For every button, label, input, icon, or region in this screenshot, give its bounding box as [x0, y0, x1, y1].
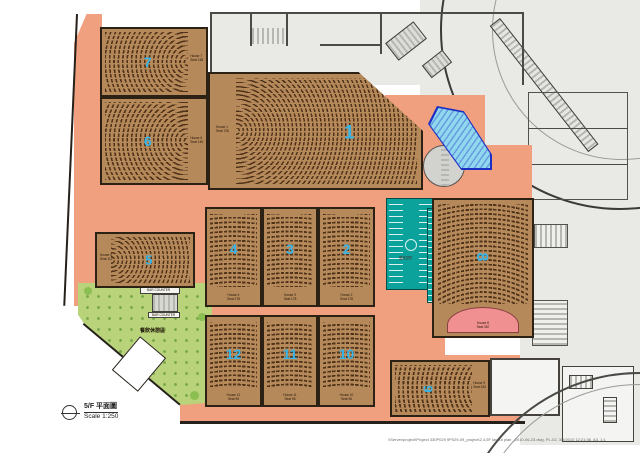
seat-count: Seat 138 — [190, 58, 203, 62]
bar-counter-label: BAR COUNTER — [147, 289, 170, 293]
house-number: 7 — [144, 55, 152, 69]
seat-count: Seat 178 — [284, 297, 297, 301]
theater-12: 12 House 12 Seat 96 — [205, 315, 262, 407]
house-number: 12 — [226, 347, 242, 361]
house-number: 5 — [145, 254, 152, 267]
stair-right-1 — [534, 224, 568, 248]
house-label: House 5 Seat 112 — [100, 254, 113, 262]
file-path-footer: \\Server\project\Project 330P029 9P029-0… — [388, 437, 606, 442]
wall-line — [380, 12, 382, 54]
wall-line — [522, 12, 524, 85]
section-marker-icon — [62, 405, 77, 420]
seat-count: Seat 112 — [100, 257, 113, 261]
house-number: 1 — [344, 124, 355, 143]
theater-4: 4 House 4 Seat 178 — [205, 207, 262, 307]
seat-count: Seat 387 — [477, 325, 490, 329]
toilet-stalls-left — [389, 203, 403, 283]
theater-1: 1 House 1 Seat 726 — [208, 72, 423, 190]
seat-count: Seat 726 — [216, 129, 229, 133]
floor-title: 5/F 平面圖 — [84, 401, 118, 413]
drawing-title-block: 5/F 平面圖 Scale 1:250 — [84, 401, 118, 420]
house-number: 9 — [422, 385, 435, 392]
spiral-stair-steps — [441, 148, 449, 186]
house-label: House 1 Seat 726 — [216, 126, 229, 134]
house-label: House 4 Seat 178 — [227, 294, 240, 302]
house-number: 10 — [339, 347, 355, 361]
dining-area-label: 餐飲休憩區 — [140, 328, 165, 334]
house-label: House 7 Seat 138 — [190, 55, 203, 63]
theater-3: 3 House 3 Seat 178 — [262, 207, 318, 307]
bar-counter-1: BAR COUNTER — [140, 287, 180, 294]
wall-line — [210, 12, 522, 14]
wall-line — [320, 44, 382, 46]
theater-10: 10 House 10 Seat 96 — [318, 315, 375, 407]
theater-2: 2 House 2 Seat 178 — [318, 207, 375, 307]
room-right-upper — [528, 92, 628, 200]
house-label: House 12 Seat 96 — [227, 394, 241, 402]
house-number: 8 — [473, 253, 489, 262]
wall-line — [528, 164, 628, 165]
bar-equipment — [152, 294, 178, 312]
house-label: House 11 Seat 96 — [283, 394, 296, 402]
seat-count: Seat 96 — [284, 397, 295, 401]
stage: House 8 Seat 387 — [447, 307, 519, 333]
house-label: House 2 Seat 178 — [340, 294, 353, 302]
scale-label: Scale 1:250 — [84, 413, 118, 420]
seat-count: Seat 146 — [190, 140, 203, 144]
seat-count: Seat 96 — [228, 397, 239, 401]
stair-right-2 — [532, 300, 568, 346]
seat-count: Seat 178 — [227, 297, 240, 301]
shrub — [84, 287, 92, 295]
house-label: House 8 Seat 387 — [477, 322, 490, 330]
floor-plan-canvas: BAR COUNTER BAR COUNTER 餐飲休憩區 機電空間 盥洗空間 … — [0, 0, 640, 453]
house-number: 11 — [283, 347, 298, 361]
seat-count: Seat 160 — [473, 385, 486, 389]
house-number: 6 — [144, 134, 152, 148]
bar-counter-label: BAR COUNTER — [152, 314, 175, 318]
seat-rows — [236, 78, 417, 184]
house-label: House 9 Seat 160 — [473, 382, 486, 390]
wall-line — [528, 128, 628, 129]
seat-count: Seat 96 — [341, 397, 352, 401]
seat-count: Seat 178 — [340, 297, 353, 301]
house-label: House 3 Seat 178 — [284, 294, 297, 302]
shrub — [190, 391, 199, 400]
restroom-label: 盥洗空間 — [399, 257, 412, 261]
stair-hatch-top — [252, 28, 286, 44]
house-number: 4 — [230, 242, 238, 256]
theater-8: 8 House 8 Seat 387 — [432, 198, 534, 338]
theater-11: 11 House 11 Seat 96 — [262, 315, 318, 407]
theater-6: 6 House 6 Seat 146 — [100, 97, 208, 185]
theater-5: 5 House 5 Seat 112 — [95, 232, 195, 288]
wall-lobby-bottom — [180, 421, 525, 424]
theater-9: 9 House 9 Seat 160 — [390, 360, 490, 417]
house-number: 2 — [343, 242, 351, 256]
bar-counter-2: BAR COUNTER — [148, 312, 180, 318]
wall-line — [286, 12, 288, 46]
house-number: 3 — [286, 242, 294, 256]
theater-7: 7 House 7 Seat 138 — [100, 27, 208, 97]
house-label: House 10 Seat 96 — [340, 394, 354, 402]
section-marker-line — [61, 413, 80, 415]
lobby-fountain — [405, 239, 417, 251]
house-label: House 6 Seat 146 — [190, 137, 203, 145]
